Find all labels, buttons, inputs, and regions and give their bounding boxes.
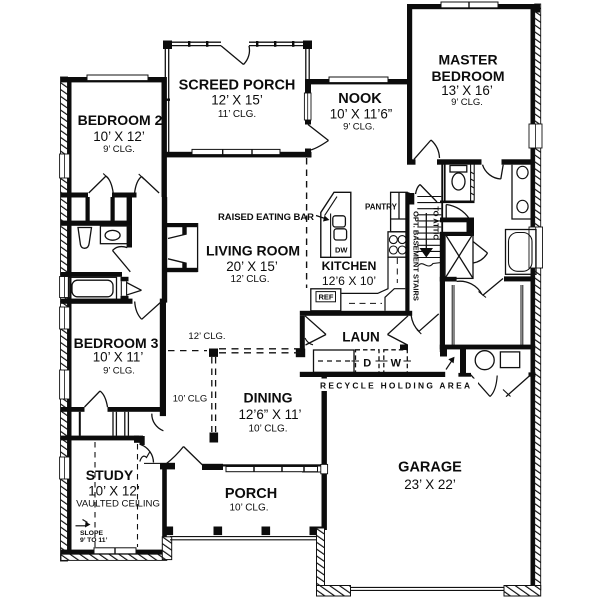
svg-text:10’ CLG.: 10’ CLG. [248, 424, 287, 435]
svg-text:LAUN: LAUN [342, 330, 380, 345]
svg-text:NOOK: NOOK [338, 91, 382, 107]
svg-text:REF: REF [319, 293, 334, 302]
svg-text:11’ CLG.: 11’ CLG. [218, 109, 256, 120]
svg-text:MASTER: MASTER [438, 52, 497, 68]
svg-text:12’6 X 10’: 12’6 X 10’ [322, 274, 376, 288]
svg-text:12’ X 15’: 12’ X 15’ [211, 93, 263, 108]
svg-text:10’ X 12’: 10’ X 12’ [88, 484, 140, 499]
svg-text:RAISED EATING BAR: RAISED EATING BAR [218, 212, 314, 223]
svg-text:DW: DW [335, 246, 348, 255]
svg-text:PORCH: PORCH [225, 486, 277, 502]
svg-text:GARAGE: GARAGE [398, 460, 462, 476]
svg-text:LIVING ROOM: LIVING ROOM [206, 243, 300, 259]
svg-text:PANTRY: PANTRY [365, 203, 398, 212]
svg-text:23’ X 22’: 23’ X 22’ [404, 477, 456, 492]
svg-text:DINING: DINING [244, 390, 293, 406]
svg-text:9’ CLG.: 9’ CLG. [103, 366, 135, 377]
svg-text:12’ CLG.: 12’ CLG. [188, 331, 225, 342]
svg-text:SCREED PORCH: SCREED PORCH [179, 78, 296, 94]
svg-text:9’ CLG.: 9’ CLG. [451, 97, 483, 108]
svg-text:13’ X 16’: 13’ X 16’ [441, 83, 493, 98]
svg-text:10’ CLG.: 10’ CLG. [229, 503, 268, 514]
svg-text:OPT. BASEMENT STAIRS: OPT. BASEMENT STAIRS [412, 211, 421, 301]
svg-text:9’ CLG.: 9’ CLG. [103, 144, 135, 155]
svg-text:W: W [391, 358, 402, 370]
svg-text:STUDY: STUDY [86, 467, 134, 483]
svg-text:12’6” X 11’: 12’6” X 11’ [238, 407, 301, 422]
svg-text:9’ TO 11’: 9’ TO 11’ [80, 537, 108, 544]
svg-text:D: D [363, 358, 371, 370]
svg-text:10’ X 11’: 10’ X 11’ [93, 350, 144, 365]
svg-text:BEDROOM 2: BEDROOM 2 [78, 112, 163, 128]
svg-text:BEDROOM: BEDROOM [431, 68, 504, 84]
svg-text:10’ CLG: 10’ CLG [173, 394, 208, 405]
svg-text:KITCHEN: KITCHEN [322, 259, 377, 273]
svg-text:10’ X 11’6”: 10’ X 11’6” [330, 107, 393, 122]
svg-text:VAULTED CEILING: VAULTED CEILING [76, 499, 160, 510]
svg-text:9’ CLG.: 9’ CLG. [343, 122, 375, 133]
svg-text:20’ X 15’: 20’ X 15’ [226, 259, 278, 274]
svg-text:TO ATTIC: TO ATTIC [432, 206, 441, 240]
svg-text:12’ CLG.: 12’ CLG. [230, 274, 269, 285]
svg-text:10’ X 12’: 10’ X 12’ [93, 129, 145, 144]
